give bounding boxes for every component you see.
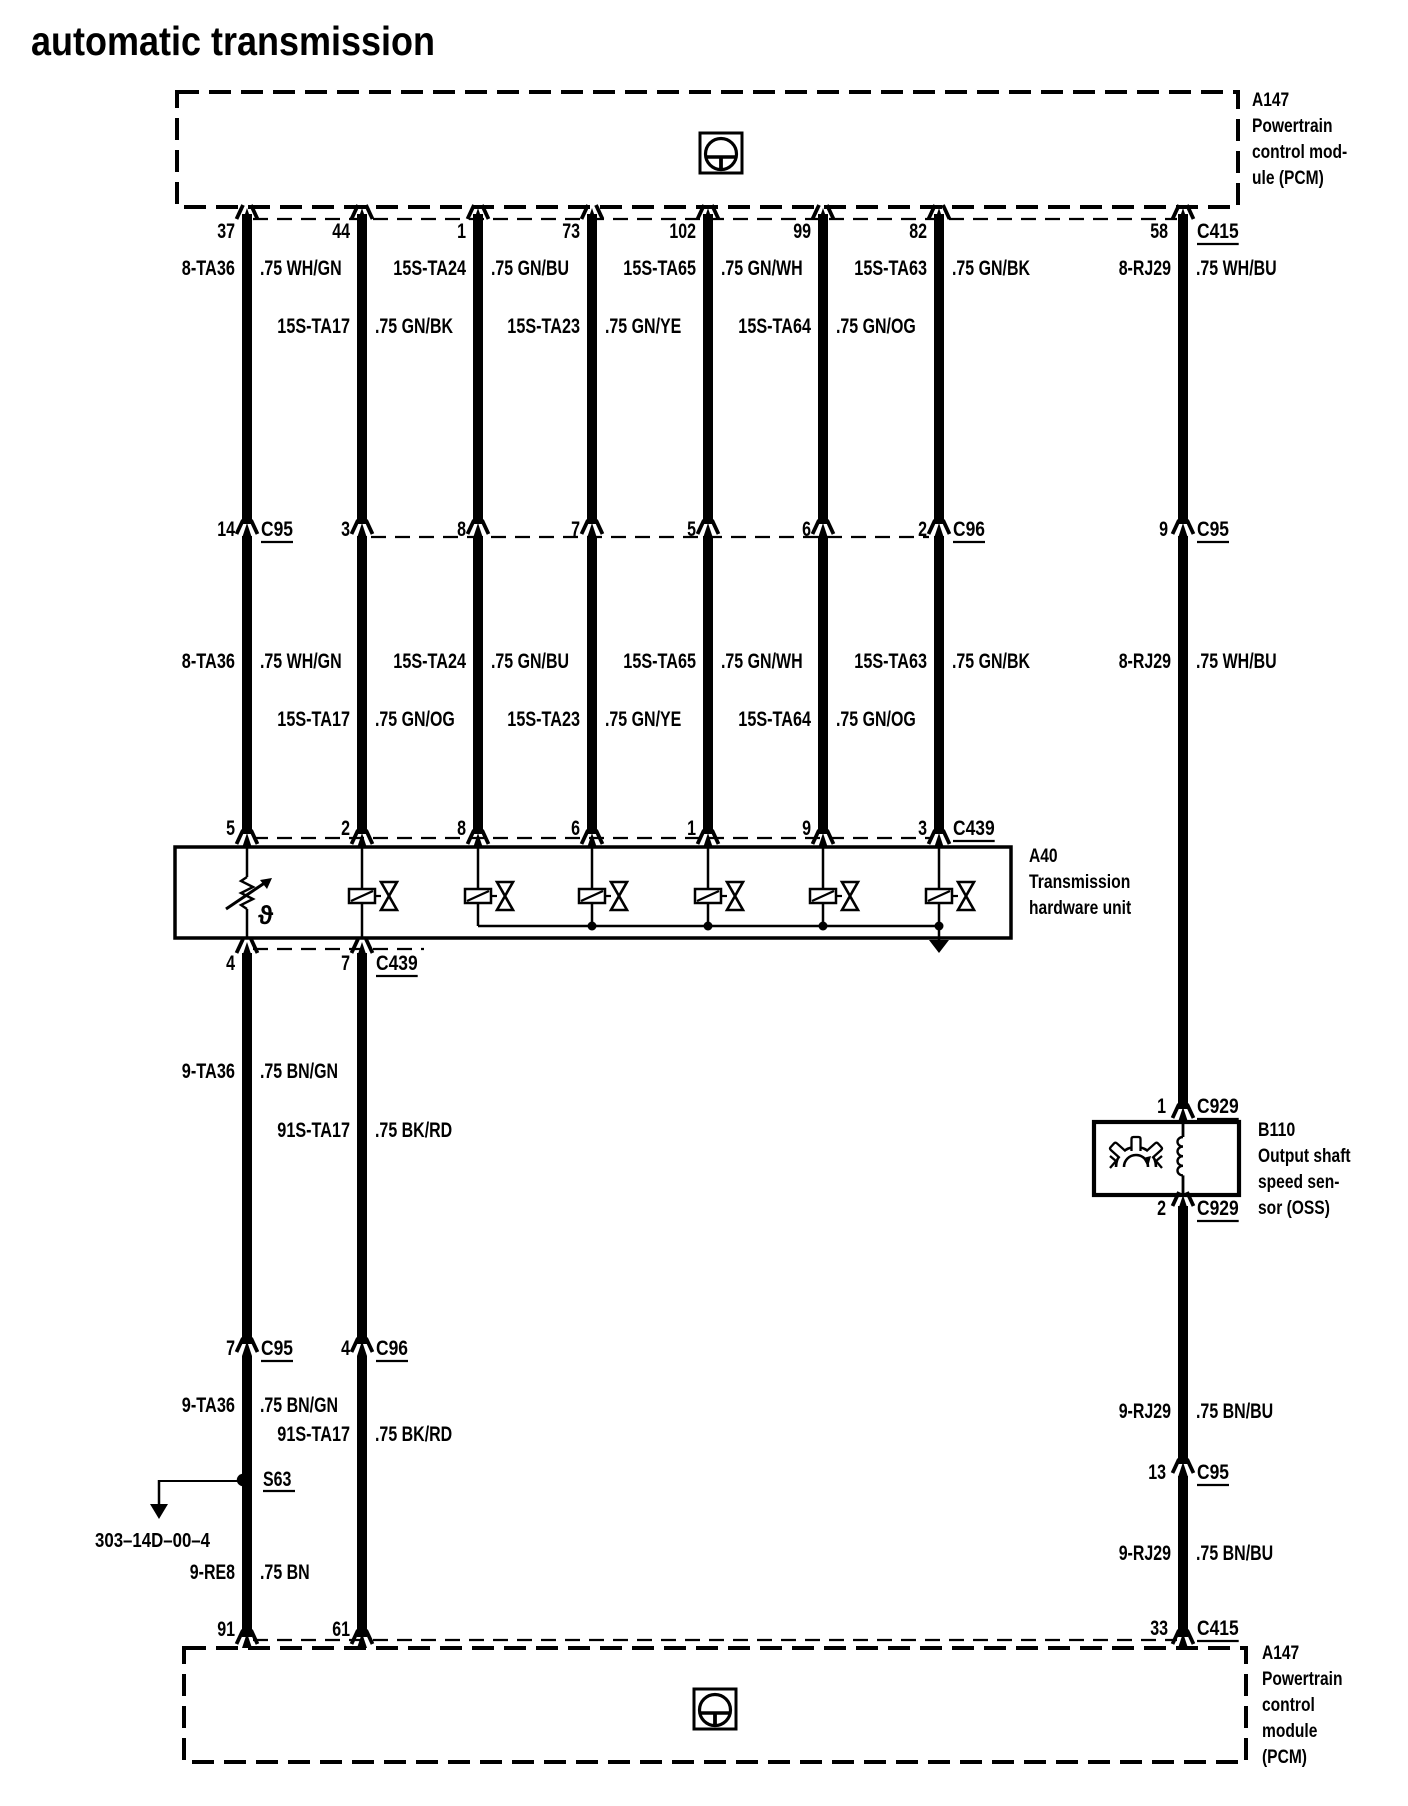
svg-text:9-TA36: 9-TA36 bbox=[182, 1060, 235, 1083]
svg-text:58: 58 bbox=[1150, 220, 1168, 243]
svg-text:B110: B110 bbox=[1258, 1120, 1295, 1141]
svg-text:37: 37 bbox=[217, 220, 235, 243]
svg-text:.75 BN/BU: .75 BN/BU bbox=[1196, 1400, 1273, 1423]
svg-text:15S-TA17: 15S-TA17 bbox=[277, 708, 350, 731]
svg-text:9-RJ29: 9-RJ29 bbox=[1119, 1542, 1171, 1565]
svg-text:.75 GN/BU: .75 GN/BU bbox=[491, 650, 569, 673]
svg-text:.75 GN/OG: .75 GN/OG bbox=[375, 708, 455, 731]
svg-text:6: 6 bbox=[802, 518, 811, 541]
svg-text:hardware unit: hardware unit bbox=[1029, 898, 1132, 919]
svg-text:91: 91 bbox=[217, 1618, 235, 1641]
svg-text:control mod-: control mod- bbox=[1252, 142, 1347, 163]
svg-text:C929: C929 bbox=[1197, 1197, 1239, 1220]
svg-text:15S-TA24: 15S-TA24 bbox=[393, 650, 466, 673]
svg-text:C439: C439 bbox=[953, 817, 995, 840]
svg-text:2: 2 bbox=[918, 518, 927, 541]
svg-text:8-TA36: 8-TA36 bbox=[182, 257, 235, 280]
svg-text:C415: C415 bbox=[1197, 1617, 1239, 1640]
svg-text:S63: S63 bbox=[263, 1468, 291, 1491]
svg-text:.75 GN/BK: .75 GN/BK bbox=[952, 257, 1030, 280]
svg-text:15S-TA63: 15S-TA63 bbox=[854, 257, 927, 280]
svg-text:C95: C95 bbox=[1197, 518, 1229, 541]
svg-text:sor (OSS): sor (OSS) bbox=[1258, 1198, 1330, 1219]
svg-text:3: 3 bbox=[341, 518, 350, 541]
svg-text:C929: C929 bbox=[1197, 1095, 1239, 1118]
svg-text:automatic transmission: automatic transmission bbox=[31, 18, 435, 64]
svg-text:.75 GN/WH: .75 GN/WH bbox=[721, 257, 803, 280]
svg-text:Output shaft: Output shaft bbox=[1258, 1146, 1351, 1167]
svg-text:speed sen-: speed sen- bbox=[1258, 1172, 1339, 1193]
svg-text:7: 7 bbox=[226, 1337, 235, 1360]
svg-text:102: 102 bbox=[669, 220, 696, 243]
svg-text:7: 7 bbox=[571, 518, 580, 541]
svg-text:C439: C439 bbox=[376, 952, 418, 975]
svg-text:73: 73 bbox=[562, 220, 580, 243]
svg-text:2: 2 bbox=[1157, 1197, 1166, 1220]
svg-text:14: 14 bbox=[217, 518, 235, 541]
svg-text:9-TA36: 9-TA36 bbox=[182, 1394, 235, 1417]
svg-text:2: 2 bbox=[341, 817, 350, 840]
svg-text:.75 BN/GN: .75 BN/GN bbox=[260, 1394, 338, 1417]
svg-text:1: 1 bbox=[457, 220, 466, 243]
svg-text:99: 99 bbox=[793, 220, 811, 243]
svg-text:61: 61 bbox=[332, 1618, 350, 1641]
svg-text:1: 1 bbox=[1157, 1095, 1166, 1118]
svg-text:.75 BN/GN: .75 BN/GN bbox=[260, 1060, 338, 1083]
svg-text:ϑ: ϑ bbox=[258, 900, 274, 930]
svg-text:C96: C96 bbox=[376, 1337, 408, 1360]
svg-text:C96: C96 bbox=[953, 518, 985, 541]
svg-text:.75 WH/GN: .75 WH/GN bbox=[260, 257, 342, 280]
svg-text:.75 GN/YE: .75 GN/YE bbox=[605, 708, 681, 731]
svg-text:15S-TA63: 15S-TA63 bbox=[854, 650, 927, 673]
svg-text:6: 6 bbox=[571, 817, 580, 840]
svg-text:82: 82 bbox=[909, 220, 927, 243]
svg-text:15S-TA23: 15S-TA23 bbox=[507, 315, 580, 338]
svg-text:ule (PCM): ule (PCM) bbox=[1252, 168, 1324, 189]
svg-text:.75 GN/OG: .75 GN/OG bbox=[836, 315, 916, 338]
svg-text:7: 7 bbox=[341, 952, 350, 975]
svg-text:.75 GN/YE: .75 GN/YE bbox=[605, 315, 681, 338]
svg-text:4: 4 bbox=[226, 952, 235, 975]
svg-text:.75 GN/WH: .75 GN/WH bbox=[721, 650, 803, 673]
svg-text:5: 5 bbox=[226, 817, 235, 840]
svg-text:8-RJ29: 8-RJ29 bbox=[1119, 257, 1171, 280]
svg-text:4: 4 bbox=[341, 1337, 350, 1360]
svg-text:.75 GN/BK: .75 GN/BK bbox=[375, 315, 453, 338]
svg-text:9: 9 bbox=[1159, 518, 1168, 541]
svg-text:91S-TA17: 91S-TA17 bbox=[277, 1119, 350, 1142]
svg-text:15S-TA17: 15S-TA17 bbox=[277, 315, 350, 338]
svg-text:15S-TA64: 15S-TA64 bbox=[738, 315, 811, 338]
svg-text:.75 WH/GN: .75 WH/GN bbox=[260, 650, 342, 673]
svg-text:.75 WH/BU: .75 WH/BU bbox=[1196, 257, 1277, 280]
svg-text:.75 BK/RD: .75 BK/RD bbox=[375, 1119, 452, 1142]
svg-text:8: 8 bbox=[457, 518, 466, 541]
svg-text:44: 44 bbox=[332, 220, 350, 243]
svg-text:91S-TA17: 91S-TA17 bbox=[277, 1423, 350, 1446]
svg-text:1: 1 bbox=[687, 817, 696, 840]
svg-text:C415: C415 bbox=[1197, 220, 1239, 243]
svg-text:.75 WH/BU: .75 WH/BU bbox=[1196, 650, 1277, 673]
svg-text:15S-TA65: 15S-TA65 bbox=[623, 650, 696, 673]
svg-text:8-TA36: 8-TA36 bbox=[182, 650, 235, 673]
svg-text:.75 BK/RD: .75 BK/RD bbox=[375, 1423, 452, 1446]
svg-text:9-RE8: 9-RE8 bbox=[190, 1561, 235, 1584]
svg-text:8-RJ29: 8-RJ29 bbox=[1119, 650, 1171, 673]
svg-text:15S-TA23: 15S-TA23 bbox=[507, 708, 580, 731]
svg-text:.75 GN/BU: .75 GN/BU bbox=[491, 257, 569, 280]
svg-text:A147: A147 bbox=[1262, 1643, 1299, 1664]
svg-text:(PCM): (PCM) bbox=[1262, 1747, 1307, 1768]
svg-text:15S-TA24: 15S-TA24 bbox=[393, 257, 466, 280]
svg-text:Powertrain: Powertrain bbox=[1252, 116, 1333, 137]
svg-text:C95: C95 bbox=[1197, 1461, 1229, 1484]
svg-text:control: control bbox=[1262, 1695, 1315, 1716]
svg-text:A40: A40 bbox=[1029, 846, 1058, 867]
svg-text:.75 BN: .75 BN bbox=[260, 1561, 310, 1584]
svg-text:C95: C95 bbox=[261, 518, 293, 541]
svg-text:8: 8 bbox=[457, 817, 466, 840]
svg-text:9: 9 bbox=[802, 817, 811, 840]
svg-text:303–14D–00–4: 303–14D–00–4 bbox=[95, 1530, 211, 1552]
svg-text:15S-TA64: 15S-TA64 bbox=[738, 708, 811, 731]
svg-text:Transmission: Transmission bbox=[1029, 872, 1130, 893]
svg-text:.75 GN/BK: .75 GN/BK bbox=[952, 650, 1030, 673]
svg-text:5: 5 bbox=[687, 518, 696, 541]
svg-text:13: 13 bbox=[1148, 1461, 1166, 1484]
svg-text:15S-TA65: 15S-TA65 bbox=[623, 257, 696, 280]
svg-text:3: 3 bbox=[918, 817, 927, 840]
svg-text:A147: A147 bbox=[1252, 90, 1289, 111]
svg-text:.75 GN/OG: .75 GN/OG bbox=[836, 708, 916, 731]
svg-text:module: module bbox=[1262, 1721, 1317, 1742]
svg-text:Powertrain: Powertrain bbox=[1262, 1669, 1343, 1690]
svg-text:C95: C95 bbox=[261, 1337, 293, 1360]
svg-text:33: 33 bbox=[1150, 1617, 1168, 1640]
svg-text:.75 BN/BU: .75 BN/BU bbox=[1196, 1542, 1273, 1565]
svg-text:9-RJ29: 9-RJ29 bbox=[1119, 1400, 1171, 1423]
